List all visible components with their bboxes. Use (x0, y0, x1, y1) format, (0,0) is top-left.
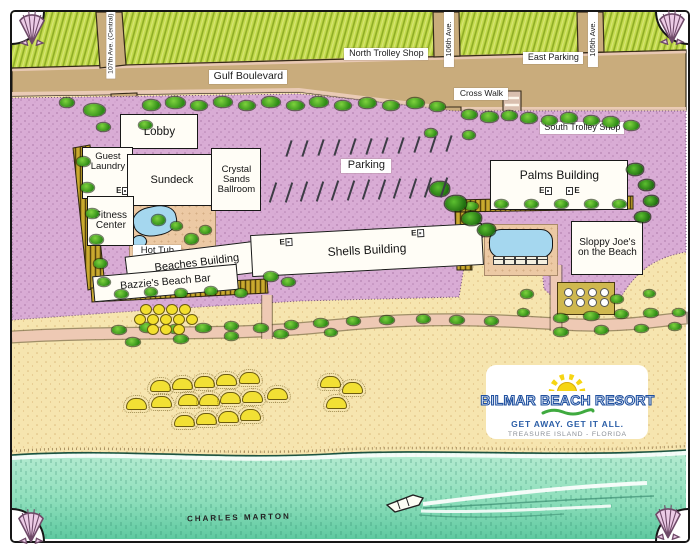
map-scene: Lobby Guest Laundry E Sundeck Crystal Sa… (10, 10, 690, 543)
building-crystal-sands: Crystal Sands Ballroom (211, 148, 261, 211)
bush-icon (335, 101, 351, 110)
bush-icon (383, 101, 399, 110)
beach-umbrella-icon (194, 376, 215, 388)
street-label-gulf-boulevard: Gulf Boulevard (209, 70, 287, 83)
beach-umbrella-icon (220, 392, 241, 404)
site-map: Lobby Guest Laundry E Sundeck Crystal Sa… (10, 10, 690, 543)
beach-umbrella-icon (240, 409, 261, 421)
bush-icon (325, 329, 337, 336)
beach-umbrella-icon (126, 398, 147, 410)
sundeck-label: Sundeck (151, 175, 194, 187)
logo-name: BILMAR BEACH RESORT (480, 393, 654, 407)
elevator-marker: E (411, 229, 425, 238)
bush-icon (86, 209, 99, 218)
bazzies-label: Bazzie's Beach Bar (120, 274, 211, 293)
shells-label: Shells Building (328, 242, 407, 259)
bush-icon (77, 157, 90, 166)
elevator-door-icon (545, 187, 552, 195)
beach-umbrella-icon (242, 391, 263, 403)
corner-shell-icon (10, 6, 54, 46)
bush-icon (542, 116, 557, 125)
beach-umbrella-icon (218, 411, 239, 423)
bush-icon (60, 98, 74, 107)
beach-umbrella-icon (342, 382, 363, 394)
building-lobby: Lobby (120, 114, 198, 149)
area-label-north-trolley: North Trolley Shop (344, 48, 428, 60)
beach-umbrella-icon (174, 415, 195, 427)
beach-umbrella-icon (239, 372, 260, 384)
beach-umbrella-icon (178, 394, 199, 406)
elevator-door-icon (566, 187, 573, 195)
guest-laundry-label: Guest Laundry (83, 152, 132, 172)
tree-icon (430, 182, 449, 196)
bush-icon (239, 101, 255, 110)
bush-icon (191, 101, 207, 110)
bush-icon (166, 97, 185, 108)
beach-umbrella-icon (199, 394, 220, 406)
beach-umbrella-icon (150, 380, 171, 392)
bush-icon (584, 116, 599, 125)
bush-icon (430, 102, 445, 111)
bush-icon (462, 110, 477, 119)
bush-icon (673, 309, 685, 316)
area-label-east-parking: East Parking (523, 52, 583, 64)
bush-icon (94, 259, 107, 268)
bush-icon (90, 235, 103, 244)
elevator-door-icon (418, 230, 425, 238)
beach-umbrella-icon (216, 374, 237, 386)
bush-icon (624, 121, 639, 130)
elevator-marker: E (280, 238, 294, 247)
corner-shell-icon (646, 500, 690, 540)
building-sundeck: Sundeck (127, 154, 216, 206)
palms-label: Palms Building (520, 169, 599, 182)
corner-shell-icon (650, 5, 694, 45)
tree-icon (627, 164, 643, 175)
bush-icon (502, 111, 517, 120)
elevator-marker: E (566, 187, 579, 195)
elevator-marker: E (539, 187, 552, 195)
crystal-sands-label: Crystal Sands Ballroom (212, 165, 260, 195)
corner-shell-icon (9, 504, 53, 544)
beach-umbrella-icon (196, 413, 217, 425)
beach-umbrella-icon (267, 388, 288, 400)
wave-icon (539, 408, 595, 416)
beach-umbrella-icon (172, 378, 193, 390)
lounge-chair-icon (537, 256, 548, 265)
area-label-parking: Parking (341, 159, 391, 173)
label-cross-walk: Cross Walk (454, 88, 508, 99)
building-sloppy-joes: Sloppy Joe's on the Beach (571, 221, 643, 275)
logo-tagline: GET AWAY. GET IT ALL. (511, 419, 624, 429)
elevator-door-icon (286, 238, 293, 246)
bush-icon (518, 309, 529, 316)
bush-icon (287, 101, 304, 110)
lounge-chair-icon (515, 256, 526, 265)
bush-icon (264, 272, 278, 281)
logo-location: TREASURE ISLAND - FLORIDA (508, 431, 627, 438)
bush-icon (669, 323, 681, 330)
sloppy-joes-label: Sloppy Joe's on the Beach (572, 238, 642, 259)
lounge-chair-icon (526, 256, 537, 265)
sun-icon (537, 367, 597, 393)
lounge-chair-icon (504, 256, 515, 265)
beach-umbrella-icon (326, 397, 347, 409)
street-label-107th: 107th Ave. (Central) (107, 10, 116, 79)
tree-icon (445, 196, 466, 211)
bush-icon (635, 325, 648, 332)
bush-icon (644, 290, 655, 297)
street-label-105th: 105th Ave. (588, 11, 598, 67)
beach-umbrella-icon (151, 396, 172, 408)
beach-umbrella-icon (320, 376, 341, 388)
resort-logo: BILMAR BEACH RESORT GET AWAY. GET IT ALL… (486, 365, 648, 439)
palms-pool (489, 229, 553, 258)
tree-icon (462, 212, 481, 225)
street-label-106th: 106th Ave. (444, 11, 454, 67)
lounge-chair-icon (493, 256, 504, 265)
resort-map-frame: Lobby Guest Laundry E Sundeck Crystal Sa… (0, 0, 700, 553)
bush-icon (81, 183, 94, 192)
